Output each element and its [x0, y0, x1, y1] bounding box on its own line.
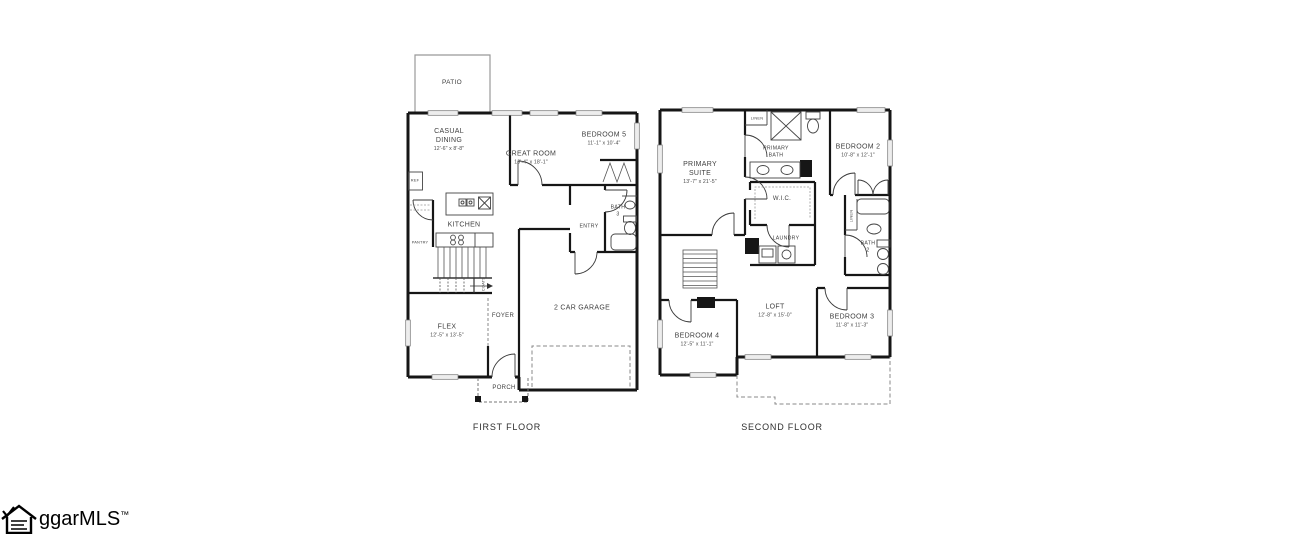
label-casual-dining: CASUAL DINING12'-6" x 8'-8": [431, 127, 467, 153]
porch-post: [522, 396, 528, 402]
trademark-symbol: ™: [120, 509, 129, 519]
label-flex: FLEX12'-5" x 13'-5": [430, 323, 463, 340]
mls-watermark: ggarMLS™: [1, 504, 129, 534]
bath3-toilet: [625, 222, 636, 235]
label-ref: REF: [411, 177, 419, 182]
label-linen-hall: LINEN: [848, 210, 853, 222]
stair-direction-arrow: [487, 283, 493, 289]
primary-toilet: [808, 119, 819, 133]
label-bath3: BATH 3: [609, 204, 627, 218]
first-floor-plan: [400, 50, 645, 415]
label-patio: PATIO: [442, 79, 462, 87]
label-bath2: BATH 2: [859, 240, 877, 254]
label-pantry: PANTRY: [412, 239, 429, 244]
roof-outline: [737, 357, 890, 404]
label-bedroom3: BEDROOM 311'-8" x 11'-3": [830, 313, 875, 330]
label-primary-suite: PRIMARY SUITE13'-7" x 21'-5": [681, 160, 719, 186]
label-coats: COATS: [480, 277, 485, 291]
watermark-text: ggarMLS™: [39, 508, 129, 531]
label-bedroom5: BEDROOM 511'-1" x 10'-4": [582, 131, 627, 148]
bedroom5-closet-bifold: [603, 163, 631, 182]
vanity-sink: [757, 166, 769, 175]
label-kitchen: KITCHEN: [448, 220, 481, 229]
label-bedroom2: BEDROOM 210'-8" x 12'-1": [836, 143, 881, 160]
chase: [697, 297, 715, 308]
washer: [778, 246, 795, 263]
house-logo-icon: [1, 504, 37, 534]
pantry-shelves: [410, 205, 431, 210]
label-great-room: GREAT ROOM13'-4" x 18'-1": [506, 150, 556, 167]
label-entry: ENTRY: [580, 224, 599, 231]
floorplan-page: { "colors": { "walls": "#161616", "backg…: [0, 0, 1316, 536]
label-laundry: LAUNDRY: [773, 236, 800, 243]
label-bedroom4: BEDROOM 412'-5" x 11'-1": [675, 332, 720, 349]
kitchen-fixtures: [409, 172, 494, 247]
chase: [745, 238, 759, 254]
first-floor-caption: FIRST FLOOR: [473, 422, 541, 434]
chase: [800, 160, 812, 177]
label-primary-bath: PRIMARY BATH: [763, 145, 789, 159]
second-floor-caption: SECOND FLOOR: [741, 422, 823, 434]
kitchen-counter: [436, 233, 493, 247]
label-wic: W.I.C.: [773, 196, 791, 204]
vanity: [750, 162, 800, 178]
label-foyer: FOYER: [492, 313, 514, 321]
label-porch: PORCH: [492, 385, 515, 393]
porch-post: [475, 396, 481, 402]
label-linen-upper: LINEN: [751, 115, 763, 120]
laundry-appliances: [759, 246, 795, 263]
label-loft: LOFT12'-8" x 15'-0": [758, 303, 791, 320]
garage-door-outline: [532, 346, 630, 387]
vanity-sink: [781, 166, 793, 175]
bath2-toilet: [878, 249, 889, 260]
bath3-tub: [611, 234, 636, 250]
bath2-tub: [857, 199, 889, 214]
label-garage: 2 CAR GARAGE: [554, 303, 610, 312]
bath2-sink: [867, 224, 881, 234]
stairs: [683, 250, 717, 288]
